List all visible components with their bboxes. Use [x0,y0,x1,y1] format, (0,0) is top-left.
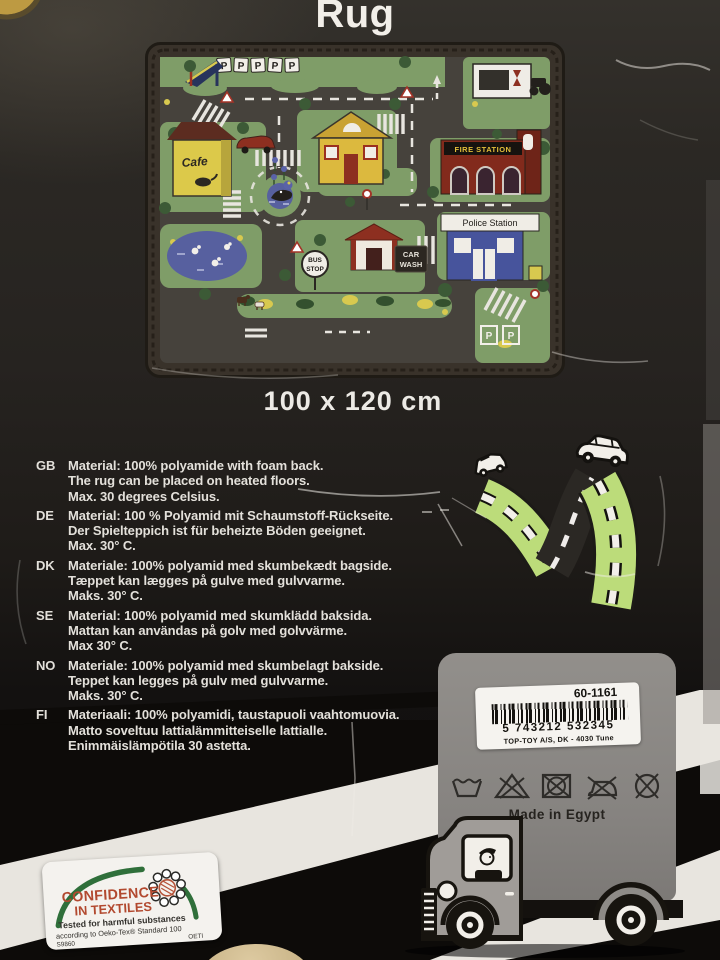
lang-code: SE [36,608,68,654]
lang-code: FI [36,707,68,753]
packaging-photo: Rug [0,0,720,960]
white-car-illustration [576,433,630,469]
cafe-sign-text: Cafe [181,154,208,170]
lang-code: DE [36,508,68,554]
lang-text: Material: 100% polyamide with foam back.… [68,458,323,504]
parking-letter: P [289,61,296,72]
product-title: Rug [0,0,710,37]
lang-block-de: DE Material: 100 % Polyamid mit Schaumst… [36,508,486,554]
lang-block-gb: GB Material: 100% polyamide with foam ba… [36,458,486,504]
door-handle [505,892,514,896]
police-station-sign-text: Police Station [462,218,517,228]
rear-wheel [605,894,657,946]
lang-text: Materiale: 100% polyamid med skumbekædt … [68,558,392,604]
parking-letter: P [508,331,515,342]
lang-text: Materiale: 100% polyamid med skumbelagt … [68,658,383,704]
car-wash-text-line1: CAR [403,250,420,259]
bus-stop-text-line2: STOP [306,266,324,273]
car-wash-sign: CAR WASH [395,246,427,272]
truck-grille [421,888,437,936]
cafe-building: Cafe [167,122,237,196]
parking-signs-row: P P P P P [217,58,300,73]
size-dimensions: 100 x 120 cm [0,386,706,417]
bus-stop-text-line1: BUS [308,257,322,264]
cert-number: S9860 [56,941,75,949]
parking-letter: P [271,61,279,72]
lang-text: Material: 100 % Polyamid mit Schaumstoff… [68,508,393,554]
car-wash-text-line2: WASH [400,260,423,269]
duck-pond [167,231,247,281]
rug-photo: P P P P P [143,42,567,378]
delivery-truck-illustration [395,648,720,960]
fire-station-building: FIRE STATION [441,130,541,194]
lang-text: Materiaali: 100% polyamidi, taustapuoli … [68,707,399,753]
fire-station-sign-text: FIRE STATION [455,145,512,154]
lang-block-dk: DK Materiale: 100% polyamid med skumbekæ… [36,558,486,604]
parking-letter: P [237,61,245,72]
cert-institute: OETI [188,933,204,941]
front-wheel [446,901,494,949]
lang-block-se: SE Material: 100% polyamid med skumklädd… [36,608,486,654]
parking-letter: P [254,61,262,72]
small-car-illustration [472,451,507,478]
rug-illustration: P P P P P [143,42,567,378]
headlight [438,882,456,900]
parking-letter: P [486,331,493,342]
lang-code: GB [36,458,68,504]
lang-text: Material: 100% polyamid med skumklädd ba… [68,608,372,654]
oeko-tex-certification-label: CONFIDENCE IN TEXTILES Tested for harmfu… [41,852,222,951]
lang-code: DK [36,558,68,604]
road-ribbon-illustration [420,420,680,630]
lang-code: NO [36,658,68,704]
garage-building [473,64,531,98]
